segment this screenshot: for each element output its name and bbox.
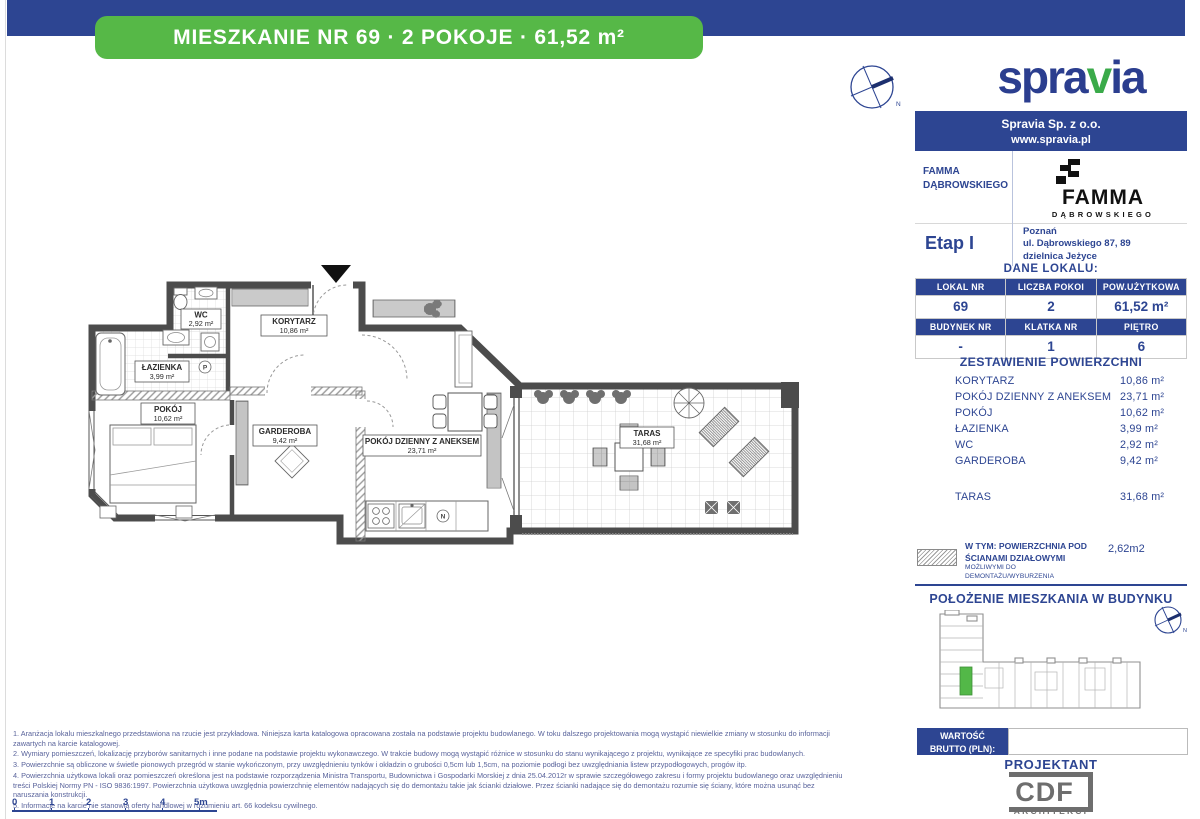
project-name: FAMMA DĄBROWSKIEGO: [923, 165, 1008, 192]
cell-value: 69: [916, 296, 1005, 318]
wall-stub: [781, 382, 799, 408]
kitchen-sink: [399, 504, 425, 528]
terrace-glass-wall: [502, 386, 522, 531]
col-header: LICZBA POKOI: [1006, 279, 1095, 295]
area-row: POKÓJ DZIENNY Z ANEKSEM23,71 m²: [955, 389, 1190, 405]
svg-text:3,99 m²: 3,99 m²: [150, 372, 175, 381]
area-row: ŁAZIENKA3,99 m²: [955, 421, 1190, 437]
living-wardrobe: [373, 300, 455, 317]
areas-heading: ZESTAWIENIE POWIERZCHNI: [915, 355, 1187, 369]
vent-symbol: N: [437, 510, 449, 522]
svg-text:31,68 m²: 31,68 m²: [633, 438, 662, 447]
scale-line: [12, 810, 217, 812]
area-row: POKÓJ10,62 m²: [955, 405, 1190, 421]
area-row: KORYTARZ10,86 m²: [955, 373, 1190, 389]
footnote: 4. Powierzchnia użytkowa lokali oraz pom…: [13, 771, 851, 800]
terrace-area-row: TARAS 31,68 m²: [955, 489, 1190, 505]
location-heading: POŁOŻENIE MIESZKANIA W BUDYNKU: [915, 592, 1187, 606]
svg-text:10,62 m²: 10,62 m²: [154, 414, 183, 423]
bathroom-sink: [163, 330, 189, 345]
closet: [236, 401, 248, 485]
room-label-korytarz: KORYTARZ 10,86 m²: [261, 315, 327, 336]
room-label-lazienka: ŁAZIENKA 3,99 m²: [135, 361, 189, 382]
floor-plan: P: [55, 243, 905, 578]
compass-north-label: N: [1183, 628, 1187, 634]
footnote: 2. Wymiary pomieszczeń, lokalizację przy…: [13, 749, 851, 759]
logo-v-green: v: [1087, 51, 1111, 103]
famma-stairs-icon: [1028, 159, 1178, 185]
hatch-swatch: [917, 549, 957, 566]
stage-row: Etap I Poznań ul. Dąbrowskiego 87, 89 dz…: [915, 223, 1187, 266]
col-header: BUDYNEK NR: [916, 319, 1005, 335]
kitchen-door-arc: [367, 401, 393, 427]
wardrobe-island: [275, 444, 309, 478]
compass-icon: N: [845, 60, 903, 118]
col-header: PIĘTRO: [1097, 319, 1186, 335]
svg-text:ŁAZIENKA: ŁAZIENKA: [142, 363, 183, 372]
bedroom-window: [86, 411, 98, 489]
company-bar: Spravia Sp. z o.o. www.spravia.pl: [915, 111, 1187, 151]
apartment-title-banner: MIESZKANIE NR 69 · 2 POKOJE · 61,52 m²: [95, 16, 703, 59]
cell-value: 61,52 m²: [1097, 296, 1186, 318]
highlighted-unit: [960, 667, 972, 695]
svg-text:9,42 m²: 9,42 m²: [273, 436, 298, 445]
room-label-pokoj: POKÓJ 10,62 m²: [141, 403, 195, 424]
room-label-salon: POKÓJ DZIENNY Z ANEKSEM 23,71 m²: [363, 435, 481, 456]
col-header: LOKAL NR: [916, 279, 1005, 295]
cell-value: 2: [1006, 296, 1095, 318]
hall-wardrobe: [232, 289, 308, 306]
project-address: Poznań ul. Dąbrowskiego 87, 89 dzielnica…: [1023, 226, 1131, 263]
room-label-garderoba: GARDEROBA 9,42 m²: [253, 425, 317, 446]
svg-text:POKÓJ: POKÓJ: [154, 405, 182, 414]
stove: [368, 504, 394, 528]
bed: [110, 425, 196, 503]
price-label: WARTOŚĆ BRUTTO (PLN):: [917, 728, 1008, 755]
svg-text:TARAS: TARAS: [634, 429, 662, 438]
price-value-field: [1008, 728, 1188, 755]
stage-label: Etap I: [925, 233, 974, 254]
partition-note: W TYM: POWIERZCHNIA POD ŚCIANAMI DZIAŁOW…: [965, 541, 1105, 582]
project-row: FAMMA DĄBROWSKIEGO FAMMA DĄBROWSKIEGO: [915, 151, 1187, 224]
cdf-subtitle: ARCHITEKCI: [915, 806, 1187, 816]
famma-logo: FAMMA DĄBROWSKIEGO: [1023, 159, 1183, 219]
col-header: KLATKA NR: [1006, 319, 1095, 335]
building-location-map: [915, 610, 1155, 722]
apartment-card: MIESZKANIE NR 69 · 2 POKOJE · 61,52 m² N…: [0, 0, 1200, 819]
unit-data-heading: DANE LOKALU:: [915, 263, 1187, 275]
apartment-title: MIESZKANIE NR 69 · 2 POKOJE · 61,52 m²: [173, 26, 625, 49]
room-label-taras: TARAS 31,68 m²: [620, 427, 674, 448]
washer-symbol: P: [199, 361, 211, 373]
column-divider: [1012, 223, 1013, 266]
divider: [915, 584, 1187, 586]
svg-text:POKÓJ DZIENNY Z ANEKSEM: POKÓJ DZIENNY Z ANEKSEM: [365, 437, 480, 446]
svg-text:23,71 m²: 23,71 m²: [408, 446, 437, 455]
unit-data-table: LOKAL NR LICZBA POKOI POW.UŻYTKOWA 69 2 …: [915, 278, 1187, 359]
company-name: Spravia Sp. z o.o.: [915, 116, 1187, 133]
logo-part: ia: [1110, 51, 1144, 103]
bathtub: [96, 333, 125, 395]
sofa: [455, 331, 472, 387]
logo-part: spra: [997, 51, 1086, 103]
wc-sink: [195, 287, 217, 299]
svg-text:N: N: [441, 514, 446, 521]
column-divider: [1012, 151, 1013, 223]
svg-text:P: P: [203, 365, 208, 372]
toilet: [174, 288, 187, 310]
spravia-logo: spravia: [952, 50, 1190, 102]
partition-area-value: 2,62m2: [1108, 543, 1145, 555]
compass-icon-small: N: [1150, 602, 1190, 642]
footnote: 1. Aranżacja lokalu mieszkalnego przedst…: [13, 729, 851, 748]
area-row: GARDEROBA9,42 m²: [955, 453, 1190, 469]
umbrella: [674, 388, 704, 418]
area-row: WC2,92 m²: [955, 437, 1190, 453]
nightstand: [176, 506, 192, 518]
svg-text:10,86 m²: 10,86 m²: [280, 326, 309, 335]
compass-north-label: N: [896, 101, 901, 108]
company-website[interactable]: www.spravia.pl: [915, 133, 1187, 148]
areas-list: KORYTARZ10,86 m² POKÓJ DZIENNY Z ANEKSEM…: [955, 373, 1190, 469]
bedroom-door-arc: [201, 425, 229, 455]
scale-bar: 0 1 2 3 4 5m: [12, 797, 222, 817]
nightstand: [100, 506, 116, 518]
room-label-wc: WC 2,92 m²: [181, 309, 221, 329]
svg-text:GARDEROBA: GARDEROBA: [259, 427, 312, 436]
designer-heading: PROJEKTANT: [915, 757, 1187, 772]
washing-machine: [201, 333, 219, 351]
svg-text:KORYTARZ: KORYTARZ: [272, 317, 316, 326]
col-header: POW.UŻYTKOWA: [1097, 279, 1186, 295]
page-edge-line: [5, 0, 6, 819]
living-door-arc: [362, 335, 407, 380]
footnote: 3. Powierzchnie są obliczone w świetle p…: [13, 760, 851, 770]
svg-text:2,92 m²: 2,92 m²: [189, 319, 214, 328]
